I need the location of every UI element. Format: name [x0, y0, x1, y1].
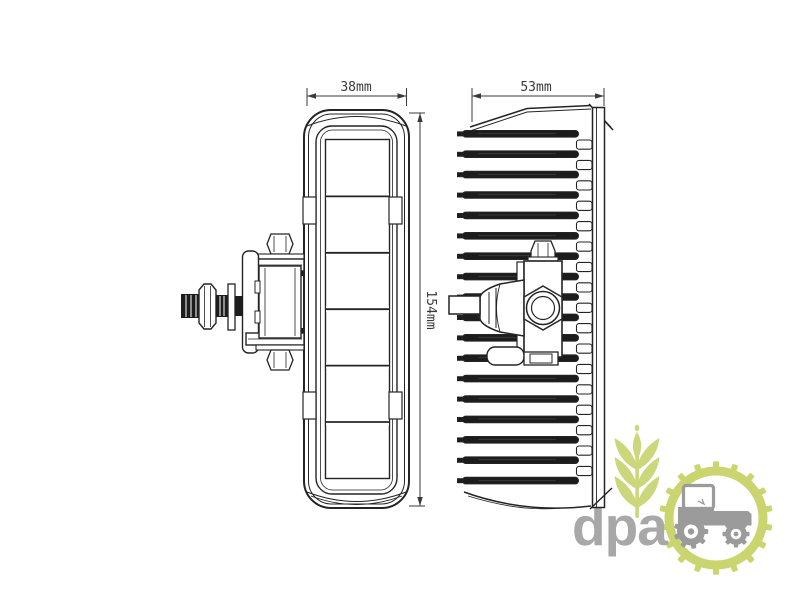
mounting-bolt	[181, 284, 243, 330]
heatsink-fin-tip	[458, 254, 463, 258]
heatsink-bump	[577, 160, 593, 169]
front-width-label: 38mm	[340, 80, 371, 95]
fin-highlight	[478, 378, 556, 379]
heatsink-fin-tip	[458, 418, 463, 422]
heatsink-base-bumps	[577, 140, 593, 476]
wheel-tooth	[746, 532, 750, 537]
heatsink-fin-tip	[458, 377, 463, 381]
arrowhead-left	[472, 93, 481, 99]
gear-tooth	[765, 524, 773, 531]
heatsink-bump	[577, 426, 593, 435]
arrowhead-left	[307, 93, 316, 99]
wheel-tooth	[691, 514, 697, 519]
heatsink-fin-tip	[458, 214, 463, 218]
fin-highlight	[478, 235, 556, 236]
heatsink-bump	[577, 385, 593, 394]
wheel-tooth	[691, 544, 697, 549]
tractor-icon	[674, 486, 752, 549]
arrowhead-right	[398, 93, 407, 99]
hex-nut	[199, 284, 216, 329]
heatsink-fin-tip	[458, 316, 463, 320]
heatsink-fin-tip	[458, 336, 463, 340]
fin-highlight	[478, 214, 556, 215]
heatsink-fin-tip	[458, 479, 463, 483]
wheel-tooth	[734, 521, 739, 525]
dimension-front-height: 154mm	[409, 113, 438, 506]
heatsink-bump	[577, 466, 593, 475]
back-plate	[593, 108, 605, 508]
heatsink-bump	[577, 446, 593, 455]
fin-highlight	[478, 439, 556, 440]
heatsink-bump	[577, 283, 593, 292]
fin-highlight	[478, 459, 556, 460]
heatsink-fin-tip	[458, 438, 463, 442]
fin-highlight	[478, 174, 556, 175]
fin-highlight	[478, 398, 556, 399]
heatsink-bump	[577, 324, 593, 333]
heatsink-fin-tip	[458, 397, 463, 401]
gear-tooth	[765, 505, 773, 512]
heatsink-bump	[577, 222, 593, 231]
gear-tooth	[713, 568, 719, 575]
fin-highlight	[478, 480, 556, 481]
fin-highlight	[478, 194, 556, 195]
heatsink-bump	[577, 242, 593, 251]
heatsink-fin-tip	[458, 152, 463, 156]
heatsink-fin-tip	[458, 356, 463, 360]
front-height-label: 154mm	[423, 290, 438, 329]
wheel-tooth	[704, 529, 709, 534]
heatsink-bump	[577, 405, 593, 414]
heatsink-bump	[577, 303, 593, 312]
arrowhead-right	[595, 93, 604, 99]
fin-highlight	[478, 153, 556, 154]
wheel-tooth	[723, 532, 727, 537]
heatsink-fin-tip	[458, 193, 463, 197]
gear-tooth	[713, 461, 719, 468]
heatsink-fin-tip	[458, 132, 463, 136]
logo-text: dpa	[572, 495, 668, 557]
wheel-tooth	[734, 544, 739, 548]
mounting-bracket-front	[243, 234, 305, 370]
side-view	[449, 104, 613, 509]
heatsink-bump	[577, 262, 593, 271]
side-width-label: 53mm	[520, 80, 551, 95]
dimension-front-width: 38mm	[307, 80, 407, 106]
fin-highlight	[478, 418, 556, 419]
technical-drawing-page: dpa	[0, 0, 800, 600]
work-light-diagram: dpa	[0, 0, 800, 600]
front-view	[181, 110, 409, 508]
fin-highlight	[478, 133, 556, 134]
heatsink-bump	[577, 344, 593, 353]
cable-connector	[449, 296, 480, 314]
arrowhead-down	[417, 497, 422, 506]
heatsink-fin-tip	[458, 275, 463, 279]
heatsink-bump	[577, 364, 593, 373]
heatsink-bump	[577, 181, 593, 190]
arrowhead-up	[417, 113, 422, 122]
heatsink-fin-tip	[458, 458, 463, 462]
heatsink-bump	[577, 201, 593, 210]
heatsink-bump	[577, 140, 593, 149]
heatsink-fin-tip	[458, 234, 463, 238]
heatsink-fin-tip	[458, 173, 463, 177]
dimension-side-width: 53mm	[472, 80, 604, 122]
